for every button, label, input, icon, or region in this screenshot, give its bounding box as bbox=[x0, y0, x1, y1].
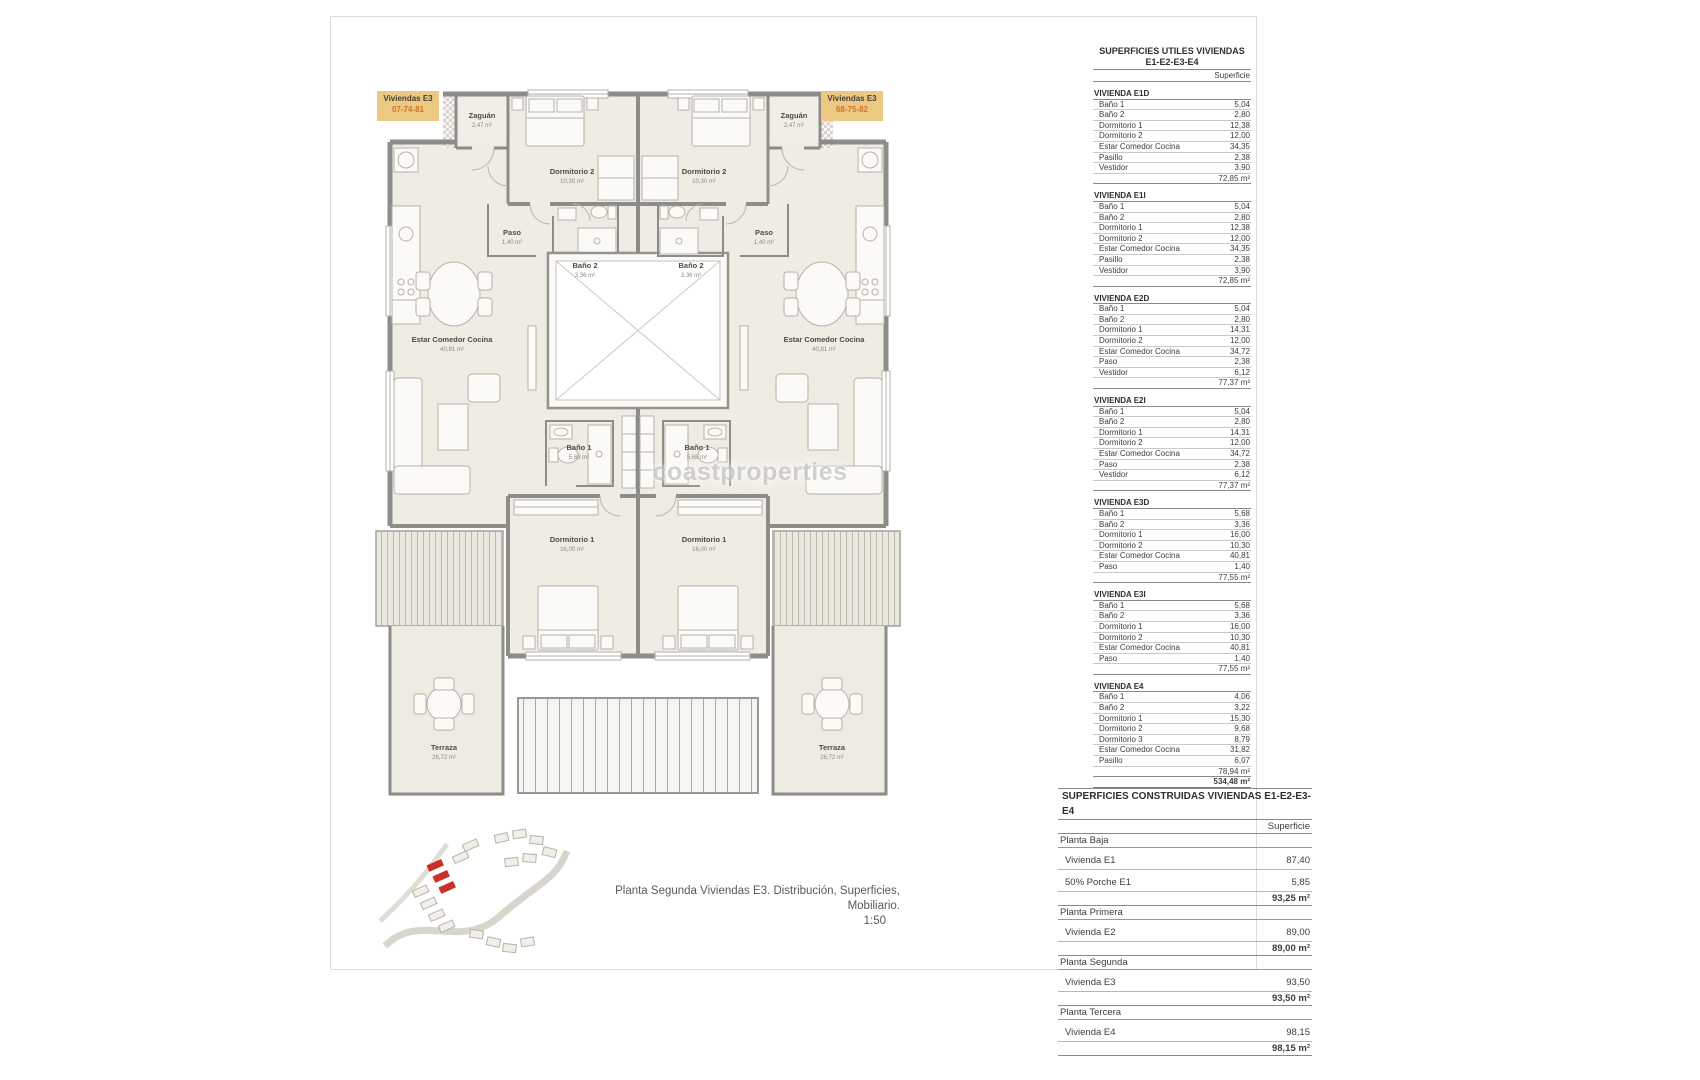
row-value: 6,12 bbox=[1234, 368, 1250, 378]
row-label: Baño 1 bbox=[1094, 407, 1124, 417]
row-label: Dormitorio 2 bbox=[1094, 541, 1143, 551]
table-row: Vestidor 3,90 bbox=[1093, 266, 1251, 277]
row-label: Estar Comedor Cocina bbox=[1094, 347, 1180, 357]
table-row: Estar Comedor Cocina 31,82 bbox=[1093, 745, 1251, 756]
row-label: Dormitorio 1 bbox=[1094, 530, 1143, 540]
row-label: Dormitorio 2 bbox=[1094, 724, 1143, 734]
row-value: 14,31 bbox=[1230, 325, 1250, 335]
row-value: 77,37 m² bbox=[1218, 481, 1250, 491]
row-label: Estar Comedor Cocina bbox=[1094, 449, 1180, 459]
table-row: VIVIENDA E1I bbox=[1093, 191, 1251, 202]
row-label: VIVIENDA E2D bbox=[1094, 294, 1149, 304]
row-label: VIVIENDA E4 bbox=[1094, 682, 1144, 692]
table-row: 77,55 m² bbox=[1093, 664, 1251, 675]
table-row: Baño 2 2,80 bbox=[1093, 213, 1251, 224]
row-label: Baño 1 bbox=[1094, 509, 1124, 519]
room-area-bano2-left: 3,36 m² bbox=[575, 273, 595, 279]
plan-sheet-page: Zaguán 2,47 m² Zaguán 2,47 m² Dormitorio… bbox=[0, 0, 1700, 1080]
row-value: 14,31 bbox=[1230, 428, 1250, 438]
row-value: 2,80 bbox=[1234, 315, 1250, 325]
row-label: Dormitorio 2 bbox=[1094, 336, 1143, 346]
row-label: Baño 2 bbox=[1094, 417, 1124, 427]
row-label: Dormitorio 2 bbox=[1094, 234, 1143, 244]
table-row: Vestidor 3,90 bbox=[1093, 163, 1251, 174]
table-row: Pasillo 2,38 bbox=[1093, 255, 1251, 266]
row-value: 16,00 bbox=[1230, 530, 1250, 540]
row-label: Baño 1 bbox=[1094, 202, 1124, 212]
table-row: Estar Comedor Cocina 34,35 bbox=[1093, 244, 1251, 255]
row-label: Vivienda E4 bbox=[1060, 1025, 1116, 1041]
row-label: Dormitorio 1 bbox=[1094, 622, 1143, 632]
row-value: 3,22 bbox=[1234, 703, 1250, 713]
superficies-utiles-table: SUPERFICIES UTILES VIVIENDAS E1-E2-E3-E4… bbox=[1093, 46, 1251, 789]
row-label: Baño 2 bbox=[1094, 213, 1124, 223]
utiles-title-line2: E1-E2-E3-E4 bbox=[1093, 57, 1251, 68]
table-row: Vivienda E1 87,40 bbox=[1058, 848, 1312, 870]
room-area-zaguan-left: 2,47 m² bbox=[472, 123, 492, 129]
table-row: VIVIENDA E1D bbox=[1093, 89, 1251, 100]
row-label: Estar Comedor Cocina bbox=[1094, 551, 1180, 561]
row-label: Estar Comedor Cocina bbox=[1094, 142, 1180, 152]
room-area-zaguan-right: 2,47 m² bbox=[784, 123, 804, 129]
unit-tag-left-code: 07-74-81 bbox=[377, 104, 439, 115]
row-label: Planta Baja bbox=[1060, 834, 1109, 847]
row-value: 8,79 bbox=[1234, 735, 1250, 745]
row-value: 15,30 bbox=[1230, 714, 1250, 724]
row-value: 6,07 bbox=[1234, 756, 1250, 766]
row-value: 2,38 bbox=[1234, 460, 1250, 470]
row-label: Pasillo bbox=[1094, 756, 1123, 766]
unit-tag-right-code: 68-75-82 bbox=[821, 104, 883, 115]
row-label: Dormitorio 1 bbox=[1094, 428, 1143, 438]
room-area-paso-left: 1,40 m² bbox=[502, 240, 522, 246]
room-area-terraza-left: 26,72 m² bbox=[432, 755, 456, 761]
table-row: Dormitorio 2 9,68 bbox=[1093, 724, 1251, 735]
table-row: Estar Comedor Cocina 34,72 bbox=[1093, 449, 1251, 460]
row-label: Vivienda E1 bbox=[1060, 853, 1116, 869]
room-label-estar-right: Estar Comedor Cocina bbox=[784, 335, 866, 344]
table-row: 78,94 m² bbox=[1093, 767, 1251, 778]
room-label-dormitorio1-right: Dormitorio 1 bbox=[682, 535, 727, 544]
room-area-dormitorio2-left: 10,30 m² bbox=[560, 179, 584, 185]
table-row: Vestidor 6,12 bbox=[1093, 368, 1251, 379]
row-value: 12,38 bbox=[1230, 121, 1250, 131]
table-row: Dormitorio 1 16,00 bbox=[1093, 622, 1251, 633]
table-row: Dormitorio 2 12,00 bbox=[1093, 131, 1251, 142]
row-value: 10,30 bbox=[1230, 541, 1250, 551]
table-row: Dormitorio 2 12,00 bbox=[1093, 336, 1251, 347]
row-value: 6,12 bbox=[1234, 470, 1250, 480]
row-label: VIVIENDA E1D bbox=[1094, 89, 1149, 99]
row-value: 9,68 bbox=[1234, 724, 1250, 734]
room-label-bano1-right: Baño 1 bbox=[684, 443, 709, 452]
room-label-zaguan-left: Zaguán bbox=[469, 111, 496, 120]
row-label: Planta Segunda bbox=[1060, 956, 1128, 969]
room-label-zaguan-right: Zaguán bbox=[781, 111, 808, 120]
table-row: Paso 2,38 bbox=[1093, 357, 1251, 368]
row-value: 98,15 m² bbox=[1272, 1042, 1310, 1055]
room-label-dormitorio2-right: Dormitorio 2 bbox=[682, 167, 727, 176]
table-row: Estar Comedor Cocina 40,81 bbox=[1093, 643, 1251, 654]
table-row: Paso 1,40 bbox=[1093, 654, 1251, 665]
table-row: 77,37 m² bbox=[1093, 378, 1251, 389]
row-value: 2,38 bbox=[1234, 153, 1250, 163]
row-label: Baño 1 bbox=[1094, 304, 1124, 314]
row-value: 12,00 bbox=[1230, 131, 1250, 141]
table-row: Baño 1 5,68 bbox=[1093, 509, 1251, 520]
construidas-rows: Planta Baja Vivienda E1 87,40 50% Porche… bbox=[1058, 834, 1312, 1056]
table-row: VIVIENDA E3I bbox=[1093, 590, 1251, 601]
room-area-bano2-right: 3,36 m² bbox=[681, 273, 701, 279]
table-row: Dormitorio 2 12,00 bbox=[1093, 234, 1251, 245]
row-label: Baño 2 bbox=[1094, 611, 1124, 621]
row-label: Dormitorio 1 bbox=[1094, 714, 1143, 724]
row-label: Baño 2 bbox=[1094, 703, 1124, 713]
row-label: Estar Comedor Cocina bbox=[1094, 244, 1180, 254]
room-label-bano2-right: Baño 2 bbox=[678, 261, 703, 270]
room-area-estar-right: 40,81 m² bbox=[812, 347, 836, 353]
row-value: 34,35 bbox=[1230, 244, 1250, 254]
row-label: Planta Tercera bbox=[1060, 1006, 1121, 1019]
table-row: Dormitorio 2 10,30 bbox=[1093, 633, 1251, 644]
row-value: 5,04 bbox=[1234, 407, 1250, 417]
table-row: Planta Tercera bbox=[1058, 1006, 1312, 1020]
row-value: 34,35 bbox=[1230, 142, 1250, 152]
row-label: Dormitorio 1 bbox=[1094, 325, 1143, 335]
row-label: Paso bbox=[1094, 654, 1117, 664]
unit-tag-left: Viviendas E3 07-74-81 bbox=[377, 91, 439, 121]
table-row: VIVIENDA E2D bbox=[1093, 294, 1251, 305]
watermark: coastproperties bbox=[595, 458, 905, 487]
row-value: 87,40 bbox=[1286, 853, 1310, 869]
row-value: 77,55 m² bbox=[1218, 664, 1250, 674]
row-value: 31,82 bbox=[1230, 745, 1250, 755]
row-value: 3,90 bbox=[1234, 163, 1250, 173]
row-label: Vestidor bbox=[1094, 266, 1128, 276]
row-value: 77,37 m² bbox=[1218, 378, 1250, 388]
room-area-terraza-right: 26,72 m² bbox=[820, 755, 844, 761]
row-label: Estar Comedor Cocina bbox=[1094, 643, 1180, 653]
unit-tag-left-title: Viviendas E3 bbox=[377, 94, 439, 104]
row-value: 93,50 bbox=[1286, 975, 1310, 991]
table-row: 93,50 m² bbox=[1058, 992, 1312, 1006]
room-label-dormitorio2-left: Dormitorio 2 bbox=[550, 167, 595, 176]
row-value: 10,30 bbox=[1230, 633, 1250, 643]
table-row: Pasillo 6,07 bbox=[1093, 756, 1251, 767]
row-label: Dormitorio 3 bbox=[1094, 735, 1143, 745]
table-row: Dormitorio 1 15,30 bbox=[1093, 714, 1251, 725]
row-value: 5,85 bbox=[1292, 875, 1311, 891]
table-row: Baño 2 2,80 bbox=[1093, 110, 1251, 121]
table-row: Estar Comedor Cocina 40,81 bbox=[1093, 551, 1251, 562]
row-label: Planta Primera bbox=[1060, 906, 1123, 919]
row-value: 12,00 bbox=[1230, 234, 1250, 244]
table-row: Dormitorio 3 8,79 bbox=[1093, 735, 1251, 746]
room-label-bano1-left: Baño 1 bbox=[566, 443, 591, 452]
table-row: VIVIENDA E3D bbox=[1093, 498, 1251, 509]
row-value: 34,72 bbox=[1230, 347, 1250, 357]
table-row: 89,00 m² bbox=[1058, 942, 1312, 956]
row-label: Vivienda E3 bbox=[1060, 975, 1116, 991]
utiles-title-line1: SUPERFICIES UTILES VIVIENDAS bbox=[1093, 46, 1251, 57]
row-value: 3,90 bbox=[1234, 266, 1250, 276]
room-label-paso-left: Paso bbox=[503, 228, 521, 237]
row-value: 3,36 bbox=[1234, 520, 1250, 530]
table-row: Pasillo 2,38 bbox=[1093, 153, 1251, 164]
row-value: 1,40 bbox=[1234, 654, 1250, 664]
row-value: 1,40 bbox=[1234, 562, 1250, 572]
row-label: Vestidor bbox=[1094, 163, 1128, 173]
table-row: Baño 1 4,06 bbox=[1093, 692, 1251, 703]
row-label: Dormitorio 2 bbox=[1094, 438, 1143, 448]
table-row: Paso 1,40 bbox=[1093, 562, 1251, 573]
site-plan-map bbox=[375, 826, 570, 968]
room-label-terraza-left: Terraza bbox=[431, 743, 458, 752]
row-label: Paso bbox=[1094, 357, 1117, 367]
row-label: Baño 1 bbox=[1094, 692, 1124, 702]
room-area-bano1-left: 5,68 m² bbox=[569, 455, 589, 461]
room-label-estar-left: Estar Comedor Cocina bbox=[412, 335, 494, 344]
row-label: Baño 2 bbox=[1094, 110, 1124, 120]
row-value: 40,81 bbox=[1230, 551, 1250, 561]
table-row: Planta Baja bbox=[1058, 834, 1312, 848]
utiles-rows: VIVIENDA E1D Baño 1 5,04 Baño 2 2,80 Dor… bbox=[1093, 89, 1251, 789]
row-value: 93,25 m² bbox=[1272, 892, 1310, 905]
table-row: VIVIENDA E4 bbox=[1093, 682, 1251, 693]
row-label: Baño 2 bbox=[1094, 520, 1124, 530]
row-label: Estar Comedor Cocina bbox=[1094, 745, 1180, 755]
room-label-dormitorio1-left: Dormitorio 1 bbox=[550, 535, 595, 544]
table-row: 72,85 m² bbox=[1093, 276, 1251, 287]
row-value: 89,00 m² bbox=[1272, 942, 1310, 955]
utiles-title: SUPERFICIES UTILES VIVIENDAS E1-E2-E3-E4 bbox=[1093, 46, 1251, 70]
room-label-paso-right: Paso bbox=[755, 228, 773, 237]
row-label: Pasillo bbox=[1094, 153, 1123, 163]
row-value: 5,04 bbox=[1234, 202, 1250, 212]
superficies-construidas-table: SUPERFICIES CONSTRUIDAS VIVIENDAS E1-E2-… bbox=[1058, 788, 1312, 1056]
row-value: 2,38 bbox=[1234, 255, 1250, 265]
row-value: 2,80 bbox=[1234, 417, 1250, 427]
row-value: 78,94 m² bbox=[1218, 767, 1250, 777]
table-row: 72,85 m² bbox=[1093, 174, 1251, 185]
row-value: 3,36 bbox=[1234, 611, 1250, 621]
row-value: 2,80 bbox=[1234, 213, 1250, 223]
row-label: VIVIENDA E1I bbox=[1094, 191, 1146, 201]
row-value: 5,04 bbox=[1234, 304, 1250, 314]
row-value: 12,38 bbox=[1230, 223, 1250, 233]
row-label: Vivienda E2 bbox=[1060, 925, 1116, 941]
room-label-bano2-left: Baño 2 bbox=[572, 261, 597, 270]
table-row: Baño 2 2,80 bbox=[1093, 417, 1251, 428]
table-row: Planta Primera bbox=[1058, 906, 1312, 920]
row-value: 98,15 bbox=[1286, 1025, 1310, 1041]
row-value: 34,72 bbox=[1230, 449, 1250, 459]
table-row: Dormitorio 1 16,00 bbox=[1093, 530, 1251, 541]
row-label: Vestidor bbox=[1094, 470, 1128, 480]
row-value: 4,06 bbox=[1234, 692, 1250, 702]
table-row: Estar Comedor Cocina 34,35 bbox=[1093, 142, 1251, 153]
unit-tag-right-title: Viviendas E3 bbox=[821, 94, 883, 104]
row-label: Dormitorio 2 bbox=[1094, 131, 1143, 141]
table-row: 93,25 m² bbox=[1058, 892, 1312, 906]
room-area-paso-right: 1,40 m² bbox=[754, 240, 774, 246]
table-row: Baño 1 5,04 bbox=[1093, 407, 1251, 418]
table-row: Dormitorio 2 12,00 bbox=[1093, 438, 1251, 449]
table-row: 98,15 m² bbox=[1058, 1042, 1312, 1056]
row-value: 77,55 m² bbox=[1218, 573, 1250, 583]
row-value: 72,85 m² bbox=[1218, 276, 1250, 286]
row-label: VIVIENDA E2I bbox=[1094, 396, 1146, 406]
table-row: Vivienda E3 93,50 bbox=[1058, 970, 1312, 992]
row-label: Paso bbox=[1094, 562, 1117, 572]
row-label: Pasillo bbox=[1094, 255, 1123, 265]
row-label: Dormitorio 1 bbox=[1094, 121, 1143, 131]
row-label: Baño 1 bbox=[1094, 601, 1124, 611]
row-label: VIVIENDA E3I bbox=[1094, 590, 1146, 600]
table-row: Baño 1 5,04 bbox=[1093, 100, 1251, 111]
table-row: Dormitorio 1 12,38 bbox=[1093, 223, 1251, 234]
row-value: 5,68 bbox=[1234, 601, 1250, 611]
table-row: Dormitorio 1 14,31 bbox=[1093, 428, 1251, 439]
row-label: Baño 2 bbox=[1094, 315, 1124, 325]
table-row: 77,55 m² bbox=[1093, 573, 1251, 584]
table-row: Vivienda E4 98,15 bbox=[1058, 1020, 1312, 1042]
table-row: Dormitorio 2 10,30 bbox=[1093, 541, 1251, 552]
row-label: Baño 1 bbox=[1094, 100, 1124, 110]
table-row: Dormitorio 1 14,31 bbox=[1093, 325, 1251, 336]
caption-line1: Planta Segunda Viviendas E3. Distribució… bbox=[560, 884, 900, 914]
table-row: Baño 2 3,36 bbox=[1093, 611, 1251, 622]
table-row: VIVIENDA E2I bbox=[1093, 396, 1251, 407]
row-label: Vestidor bbox=[1094, 368, 1128, 378]
row-value: 12,00 bbox=[1230, 336, 1250, 346]
table-row: Dormitorio 1 12,38 bbox=[1093, 121, 1251, 132]
row-value: 5,04 bbox=[1234, 100, 1250, 110]
table-row: Estar Comedor Cocina 34,72 bbox=[1093, 347, 1251, 358]
table-row: Vestidor 6,12 bbox=[1093, 470, 1251, 481]
table-row: Baño 1 5,04 bbox=[1093, 202, 1251, 213]
row-value: 72,85 m² bbox=[1218, 174, 1250, 184]
row-value: 89,00 bbox=[1286, 925, 1310, 941]
row-value: 40,81 bbox=[1230, 643, 1250, 653]
table-row: Vivienda E2 89,00 bbox=[1058, 920, 1312, 942]
row-value: 93,50 m² bbox=[1272, 992, 1310, 1005]
row-label: 50% Porche E1 bbox=[1060, 875, 1131, 891]
table-row: Baño 1 5,04 bbox=[1093, 304, 1251, 315]
row-value: 12,00 bbox=[1230, 438, 1250, 448]
room-area-dormitorio1-right: 16,00 m² bbox=[692, 547, 716, 553]
row-value: 2,80 bbox=[1234, 110, 1250, 120]
plan-caption: Planta Segunda Viviendas E3. Distribució… bbox=[560, 884, 900, 929]
room-area-dormitorio1-left: 16,00 m² bbox=[560, 547, 584, 553]
table-row: 77,37 m² bbox=[1093, 481, 1251, 492]
row-value: 5,68 bbox=[1234, 509, 1250, 519]
table-row: 50% Porche E1 5,85 bbox=[1058, 870, 1312, 892]
row-label: Dormitorio 2 bbox=[1094, 633, 1143, 643]
unit-tag-right: Viviendas E3 68-75-82 bbox=[821, 91, 883, 121]
caption-scale: 1:50 bbox=[560, 914, 900, 929]
utiles-column-header: Superficie bbox=[1093, 70, 1251, 82]
table-row: Planta Segunda bbox=[1058, 956, 1312, 970]
row-label: Paso bbox=[1094, 460, 1117, 470]
row-value: 2,38 bbox=[1234, 357, 1250, 367]
table-row: Baño 2 2,80 bbox=[1093, 315, 1251, 326]
row-value: 16,00 bbox=[1230, 622, 1250, 632]
row-label: VIVIENDA E3D bbox=[1094, 498, 1149, 508]
row-label: Dormitorio 1 bbox=[1094, 223, 1143, 233]
construidas-title: SUPERFICIES CONSTRUIDAS VIVIENDAS E1-E2-… bbox=[1058, 788, 1312, 820]
room-label-terraza-right: Terraza bbox=[819, 743, 846, 752]
room-area-dormitorio2-right: 10,30 m² bbox=[692, 179, 716, 185]
room-area-estar-left: 40,81 m² bbox=[440, 347, 464, 353]
table-row: Baño 2 3,36 bbox=[1093, 520, 1251, 531]
table-row: Paso 2,38 bbox=[1093, 460, 1251, 471]
row-value: 534,48 m² bbox=[1214, 777, 1250, 787]
table-row: Baño 2 3,22 bbox=[1093, 703, 1251, 714]
table-row: Baño 1 5,68 bbox=[1093, 601, 1251, 612]
construidas-column-header: Superficie bbox=[1058, 820, 1312, 834]
site-highlight-buildings bbox=[426, 859, 455, 894]
